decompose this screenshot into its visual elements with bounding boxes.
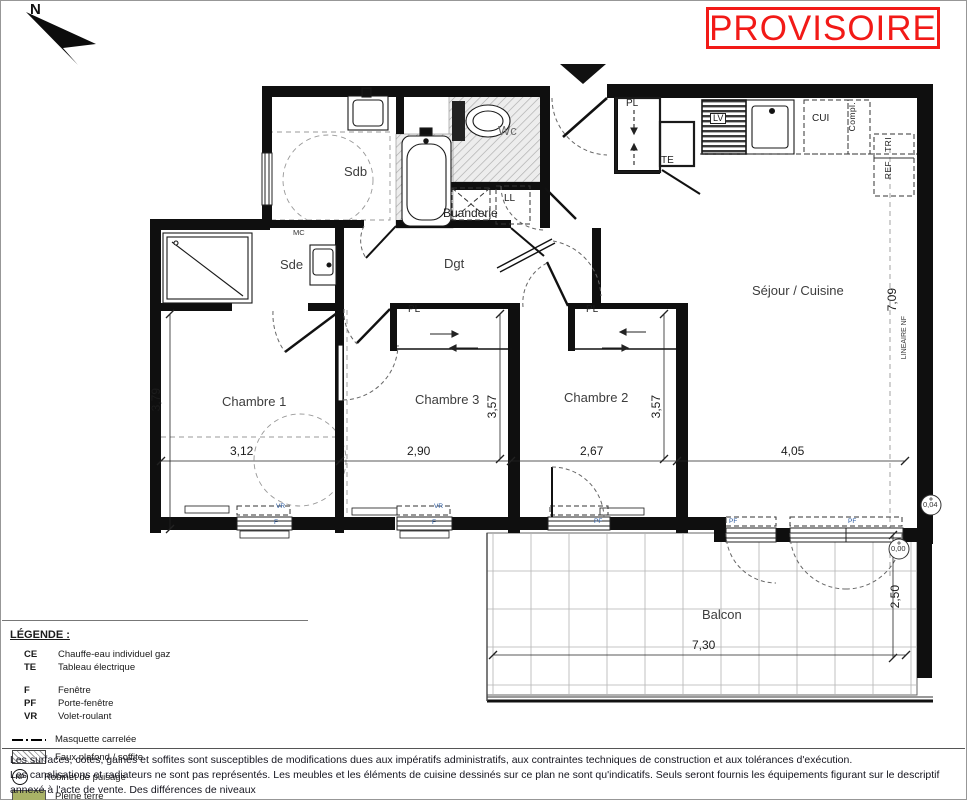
label-code-compl: Compl. [848, 102, 857, 131]
label-level-balcon: 0,00 [891, 545, 906, 553]
label-win-f-ch1: F [274, 520, 278, 527]
legend-abbr-vr: VRVolet-roulant [8, 711, 308, 722]
label-room-buanderie: Buanderie [443, 207, 498, 220]
disclaimer-line-1: Les surfaces, cotes, gaines et soffites … [10, 753, 957, 768]
legend-symbol-label: Masquette carrelée [55, 734, 136, 745]
legend-abbr-code: TE [8, 662, 58, 673]
label-code-pl-ch3: PL [408, 305, 420, 316]
legend-dash-symbol [12, 739, 46, 741]
label-dim-7-09: 7,09 [886, 288, 899, 311]
legend-abbr-te: TETableau électrique [8, 662, 308, 673]
label-room-wc: Wc [498, 124, 517, 138]
label-room-dgt: Dgt [444, 257, 464, 271]
label-dim-2-90: 2,90 [407, 445, 430, 458]
label-code-tri: TRI [884, 137, 893, 152]
legend-abbr-code: F [8, 685, 58, 696]
label-dim-3-57-a: 3,57 [486, 395, 499, 418]
label-dim-3-12: 3,12 [230, 445, 253, 458]
legend-abbr-f: FFenêtre [8, 685, 308, 696]
label-room-balcon: Balcon [702, 608, 742, 622]
label-dim-2-67: 2,67 [580, 445, 603, 458]
label-win-pf-sejour-2: PF [848, 519, 856, 526]
label-room-chambre2: Chambre 2 [564, 391, 628, 405]
label-room-sde: Sde [280, 258, 303, 272]
label-code-ref: REF [884, 161, 893, 179]
label-win-pf-ch2: PF [594, 519, 602, 526]
legend-title: LÉGENDE : [10, 629, 308, 641]
label-dim-7-30: 7,30 [692, 639, 715, 652]
legend-abbr-ce: CEChauffe-eau individuel gaz [8, 649, 308, 660]
label-code-cui: CUI [812, 114, 829, 125]
label-win-f-ch3: F [432, 520, 436, 527]
label-dim-3-79: 3,79 [150, 388, 163, 411]
disclaimer-line-2: Les canalisations et radiateurs ne sont … [10, 768, 957, 798]
label-dim-lineaire-nf: LINEAIRE NF [901, 316, 908, 359]
legend-abbr-label: Tableau électrique [58, 662, 135, 673]
label-code-mc: MC [293, 229, 305, 237]
legend-abbr-label: Volet-roulant [58, 711, 111, 722]
label-win-pf-sejour-1: PF [729, 519, 737, 526]
label-code-pl-ch2: PL [586, 305, 598, 316]
floor-plan-page: N PROVISOIRE [0, 0, 967, 800]
label-code-te: TE [661, 156, 674, 167]
legend-abbr-code: PF [8, 698, 58, 709]
label-code-ll: LL [504, 194, 515, 205]
label-win-vr-ch1: VR [276, 504, 285, 511]
label-code-lv: LV [710, 113, 726, 124]
label-win-vr-ch3: VR [434, 504, 443, 511]
label-room-chambre1: Chambre 1 [222, 395, 286, 409]
entrance-marker [560, 64, 606, 84]
legend-abbr-code: VR [8, 711, 58, 722]
label-dim-4-05: 4,05 [781, 445, 804, 458]
label-room-chambre3: Chambre 3 [415, 393, 479, 407]
disclaimer: Les surfaces, cotes, gaines et soffites … [2, 748, 965, 798]
legend-abbr-label: Chauffe-eau individuel gaz [58, 649, 170, 660]
legend-abbr-label: Fenêtre [58, 685, 91, 696]
label-dim-3-57-b: 3,57 [650, 395, 663, 418]
legend-symbol-row-0: Masquette carrelée [8, 734, 308, 745]
legend-abbr-pf: PFPorte-fenêtre [8, 698, 308, 709]
label-level-interieur: 0,04 [923, 501, 938, 509]
label-dim-2-50: 2,50 [889, 585, 902, 608]
legend-abbreviations: CEChauffe-eau individuel gazTETableau él… [8, 649, 308, 722]
legend-abbr-label: Porte-fenêtre [58, 698, 113, 709]
label-code-pl-entree: PL [626, 99, 638, 110]
legend-abbr-code: CE [8, 649, 58, 660]
label-room-sejour: Séjour / Cuisine [752, 284, 844, 298]
label-room-sdb: Sdb [344, 165, 367, 179]
